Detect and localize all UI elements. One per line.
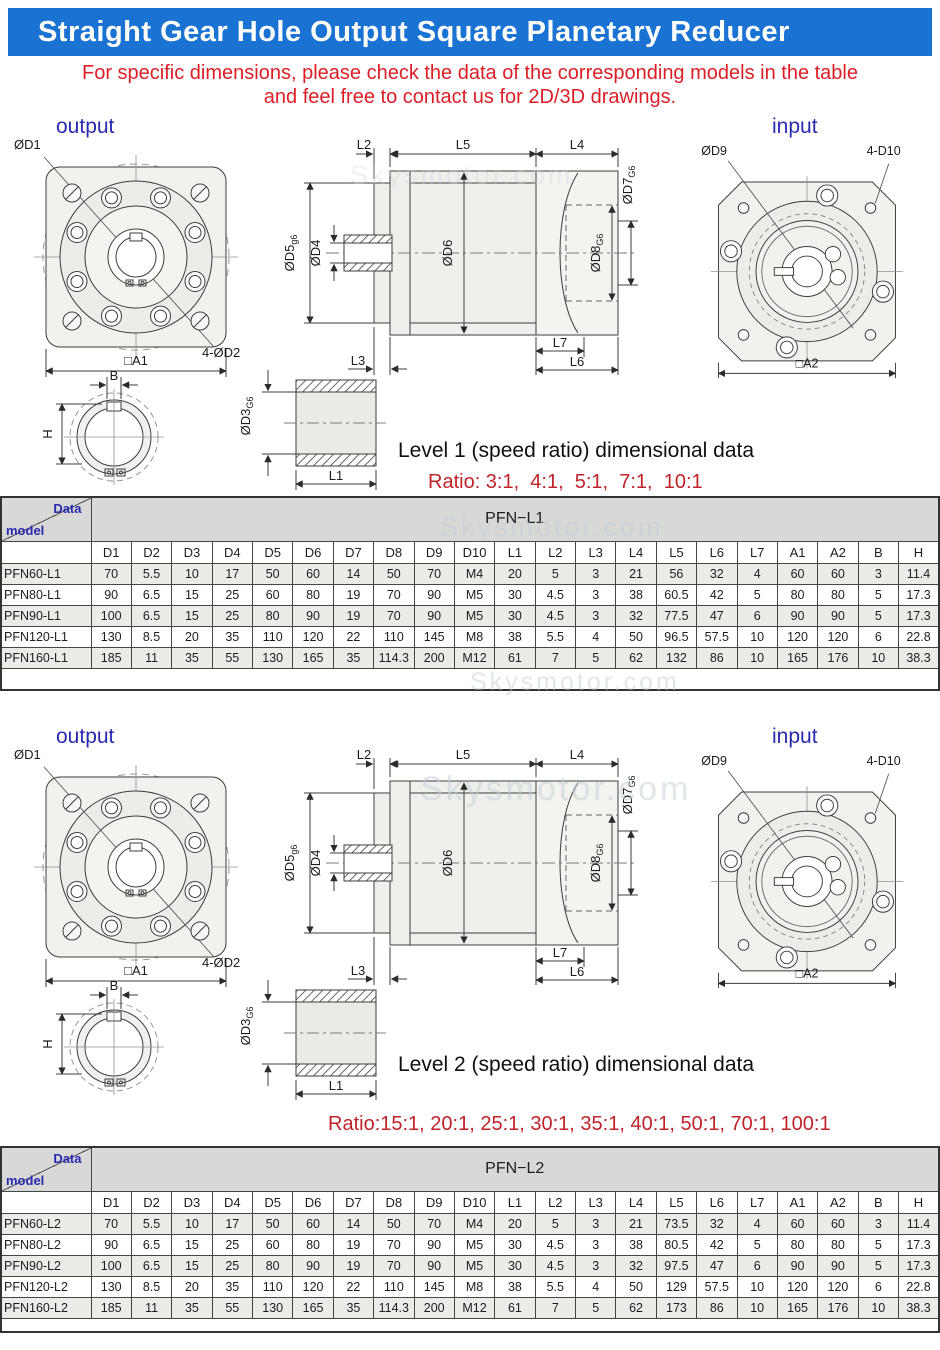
column-header: A2 [818, 541, 858, 563]
value-cell: 90 [91, 1234, 131, 1255]
value-cell: 20 [495, 1213, 535, 1234]
value-cell: 77.5 [656, 605, 696, 626]
value-cell: 22 [333, 626, 373, 647]
value-cell: 5.5 [535, 1276, 575, 1297]
column-header: L7 [737, 1191, 777, 1213]
value-cell: 3 [576, 584, 616, 605]
value-cell: 5 [858, 605, 898, 626]
value-cell: 7 [535, 647, 575, 668]
model-cell: PFN80-L2 [1, 1234, 91, 1255]
column-header: D9 [414, 1191, 454, 1213]
corner-label-data: Data [53, 1151, 81, 1166]
value-cell: 80 [777, 1234, 817, 1255]
table-row: PFN120-L21308.5203511012022110145M8385.5… [1, 1276, 939, 1297]
output-view [8, 133, 278, 383]
group-header-row: Data model PFN−L2 [1, 1147, 939, 1191]
value-cell: 60 [253, 1234, 293, 1255]
value-cell: 100 [91, 1255, 131, 1276]
series-header: PFN−L1 [91, 497, 939, 541]
value-cell: 96.5 [656, 626, 696, 647]
bushing-view [238, 964, 388, 1104]
value-cell: 38 [616, 584, 656, 605]
value-cell: 47 [697, 605, 737, 626]
value-cell: 60.5 [656, 584, 696, 605]
corner-label-data: Data [53, 501, 81, 516]
value-cell: 17.3 [899, 605, 940, 626]
column-header: A1 [777, 1191, 817, 1213]
column-header: L5 [656, 541, 696, 563]
level1-ratio: Ratio: 3:1, 4:1, 5:1, 7:1, 10:1 [428, 471, 703, 494]
value-cell: 80 [293, 1234, 333, 1255]
value-cell: 129 [656, 1276, 696, 1297]
value-cell: 114.3 [374, 647, 414, 668]
value-cell: 60 [293, 563, 333, 584]
column-header: L4 [616, 541, 656, 563]
value-cell: 130 [253, 647, 293, 668]
value-cell: 80 [253, 1255, 293, 1276]
input-view [682, 133, 932, 383]
value-cell: 55 [212, 1297, 252, 1318]
value-cell: 20 [495, 563, 535, 584]
value-cell: 10 [737, 647, 777, 668]
value-cell: 6 [737, 1255, 777, 1276]
table-row: PFN160-L218511355513016535114.3200M12617… [1, 1297, 939, 1318]
value-cell: 50 [374, 1213, 414, 1234]
value-cell: 35 [333, 647, 373, 668]
value-cell: 114.3 [374, 1297, 414, 1318]
value-cell: 62 [616, 647, 656, 668]
column-header: D10 [454, 1191, 494, 1213]
value-cell: 145 [414, 1276, 454, 1297]
value-cell: 176 [818, 647, 858, 668]
value-cell: 22.8 [899, 1276, 940, 1297]
value-cell: 61 [495, 647, 535, 668]
value-cell: 10 [737, 626, 777, 647]
value-cell: 61 [495, 1297, 535, 1318]
value-cell: 6.5 [131, 605, 171, 626]
value-cell: 110 [253, 626, 293, 647]
value-cell: 10 [737, 1276, 777, 1297]
value-cell: 21 [616, 563, 656, 584]
value-cell: 130 [253, 1297, 293, 1318]
model-cell: PFN120-L1 [1, 626, 91, 647]
value-cell: 35 [172, 1297, 212, 1318]
table-row: PFN60-L1705.510175060145070M420532156324… [1, 563, 939, 584]
model-cell: PFN90-L1 [1, 605, 91, 626]
value-cell: 6 [858, 1276, 898, 1297]
column-header: H [899, 541, 940, 563]
model-cell: PFN80-L1 [1, 584, 91, 605]
value-cell: M8 [454, 626, 494, 647]
table-row: PFN90-L11006.515258090197090M5304.533277… [1, 605, 939, 626]
value-cell: 60 [777, 563, 817, 584]
value-cell: 15 [172, 1255, 212, 1276]
value-cell: 110 [253, 1276, 293, 1297]
value-cell: 25 [212, 1255, 252, 1276]
value-cell: 90 [414, 1255, 454, 1276]
value-cell: 30 [495, 1255, 535, 1276]
value-cell: 110 [374, 1276, 414, 1297]
value-cell: 4 [576, 626, 616, 647]
value-cell: 200 [414, 647, 454, 668]
value-cell: 5.5 [131, 1213, 171, 1234]
column-header: L1 [495, 1191, 535, 1213]
value-cell: 80.5 [656, 1234, 696, 1255]
column-header: D9 [414, 541, 454, 563]
value-cell: 30 [495, 1234, 535, 1255]
value-cell: 70 [374, 584, 414, 605]
value-cell: 50 [253, 1213, 293, 1234]
value-cell: 32 [697, 563, 737, 584]
model-cell: PFN160-L2 [1, 1297, 91, 1318]
column-header: D8 [374, 1191, 414, 1213]
value-cell: 6.5 [131, 584, 171, 605]
level2-ratio: Ratio:15:1, 20:1, 25:1, 30:1, 35:1, 40:1… [328, 1113, 831, 1136]
value-cell: 120 [818, 1276, 858, 1297]
value-cell: 35 [212, 1276, 252, 1297]
value-cell: 3 [576, 563, 616, 584]
table-row: PFN160-L118511355513016535114.3200M12617… [1, 647, 939, 668]
value-cell: 110 [374, 626, 414, 647]
page: Straight Gear Hole Output Square Planeta… [0, 0, 940, 1350]
dimension-table-l2: Data model PFN−L2 D1D2D3D4D5D6D7D8D9D10L… [0, 1146, 940, 1333]
value-cell: 38 [495, 1276, 535, 1297]
value-cell: 15 [172, 1234, 212, 1255]
column-header: L5 [656, 1191, 696, 1213]
value-cell: 185 [91, 1297, 131, 1318]
value-cell: 55 [212, 647, 252, 668]
value-cell: 5.5 [131, 563, 171, 584]
empty-header-cell [1, 1191, 91, 1213]
value-cell: 6 [737, 605, 777, 626]
column-header: D4 [212, 1191, 252, 1213]
value-cell: 50 [374, 563, 414, 584]
value-cell: M5 [454, 1234, 494, 1255]
value-cell: 90 [414, 584, 454, 605]
model-cell: PFN120-L2 [1, 1276, 91, 1297]
value-cell: 5 [858, 1255, 898, 1276]
column-header: D7 [333, 541, 373, 563]
value-cell: 11 [131, 1297, 171, 1318]
level1-section: output input Level 1 (speed ratio) dimen… [0, 111, 940, 691]
column-header: L3 [576, 1191, 616, 1213]
value-cell: 38 [616, 1234, 656, 1255]
column-header: L2 [535, 541, 575, 563]
value-cell: 19 [333, 1234, 373, 1255]
group-header-row: Data model PFN−L1 [1, 497, 939, 541]
value-cell: 80 [818, 584, 858, 605]
bushing-view [238, 354, 388, 494]
value-cell: 3 [858, 1213, 898, 1234]
value-cell: 35 [212, 626, 252, 647]
value-cell: 90 [414, 1234, 454, 1255]
value-cell: 4.5 [535, 605, 575, 626]
value-cell: 60 [777, 1213, 817, 1234]
drawings-panel-2: output input Level 2 (speed ratio) dimen… [0, 721, 940, 1146]
column-header: B [858, 541, 898, 563]
value-cell: 90 [293, 1255, 333, 1276]
value-cell: 60 [818, 563, 858, 584]
value-cell: 32 [616, 1255, 656, 1276]
value-cell: 20 [172, 1276, 212, 1297]
value-cell: 90 [777, 1255, 817, 1276]
value-cell: 70 [91, 1213, 131, 1234]
value-cell: 185 [91, 647, 131, 668]
value-cell: 80 [777, 584, 817, 605]
column-header: D2 [131, 1191, 171, 1213]
value-cell: M12 [454, 1297, 494, 1318]
value-cell: 60 [293, 1213, 333, 1234]
value-cell: 173 [656, 1297, 696, 1318]
column-header-row: D1D2D3D4D5D6D7D8D9D10L1L2L3L4L5L6L7A1A2B… [1, 541, 939, 563]
value-cell: 6 [858, 626, 898, 647]
value-cell: M8 [454, 1276, 494, 1297]
level1-heading: Level 1 (speed ratio) dimensional data [398, 439, 754, 463]
value-cell: 15 [172, 605, 212, 626]
value-cell: 50 [616, 626, 656, 647]
value-cell: M5 [454, 584, 494, 605]
value-cell: 4 [576, 1276, 616, 1297]
value-cell: 5 [576, 1297, 616, 1318]
series-header: PFN−L2 [91, 1147, 939, 1191]
column-header-row: D1D2D3D4D5D6D7D8D9D10L1L2L3L4L5L6L7A1A2B… [1, 1191, 939, 1213]
value-cell: 14 [333, 1213, 373, 1234]
value-cell: 14 [333, 563, 373, 584]
value-cell: 3 [858, 563, 898, 584]
value-cell: 6.5 [131, 1234, 171, 1255]
value-cell: 35 [333, 1297, 373, 1318]
value-cell: 60 [253, 584, 293, 605]
blank-cell [1, 1318, 939, 1332]
value-cell: 80 [293, 584, 333, 605]
blank-cell [1, 668, 939, 690]
value-cell: 10 [172, 563, 212, 584]
value-cell: M5 [454, 605, 494, 626]
value-cell: 120 [293, 626, 333, 647]
value-cell: 11.4 [899, 1213, 940, 1234]
value-cell: 5 [858, 1234, 898, 1255]
value-cell: 50 [616, 1276, 656, 1297]
value-cell: M4 [454, 1213, 494, 1234]
value-cell: 145 [414, 626, 454, 647]
hub-view [42, 979, 192, 1104]
column-header: D2 [131, 541, 171, 563]
value-cell: M12 [454, 647, 494, 668]
value-cell: 120 [818, 626, 858, 647]
value-cell: 3 [576, 1234, 616, 1255]
column-header: L6 [697, 541, 737, 563]
value-cell: 25 [212, 584, 252, 605]
value-cell: 10 [858, 647, 898, 668]
value-cell: 19 [333, 584, 373, 605]
value-cell: 120 [777, 626, 817, 647]
value-cell: 32 [697, 1213, 737, 1234]
value-cell: 5 [535, 1213, 575, 1234]
value-cell: 3 [576, 605, 616, 626]
empty-header-cell [1, 541, 91, 563]
value-cell: 73.5 [656, 1213, 696, 1234]
model-cell: PFN60-L1 [1, 563, 91, 584]
section-view [278, 121, 648, 386]
value-cell: 165 [777, 647, 817, 668]
value-cell: 17.3 [899, 1234, 940, 1255]
value-cell: 19 [333, 605, 373, 626]
value-cell: 38 [495, 626, 535, 647]
value-cell: 5 [737, 584, 777, 605]
value-cell: 165 [293, 1297, 333, 1318]
level2-section: output input Level 2 (speed ratio) dimen… [0, 721, 940, 1333]
drawings-panel-1: output input Level 1 (speed ratio) dimen… [0, 111, 940, 496]
value-cell: 11 [131, 647, 171, 668]
value-cell: 130 [91, 626, 131, 647]
value-cell: 38.3 [899, 1297, 940, 1318]
value-cell: 4.5 [535, 1234, 575, 1255]
column-header: A1 [777, 541, 817, 563]
corner-cell: Data model [1, 497, 91, 541]
column-header: L1 [495, 541, 535, 563]
value-cell: 7 [535, 1297, 575, 1318]
value-cell: 80 [253, 605, 293, 626]
value-cell: 17.3 [899, 584, 940, 605]
value-cell: 70 [374, 1234, 414, 1255]
value-cell: 5 [858, 584, 898, 605]
column-header: D7 [333, 1191, 373, 1213]
value-cell: 5 [737, 1234, 777, 1255]
value-cell: 4.5 [535, 1255, 575, 1276]
value-cell: M5 [454, 1255, 494, 1276]
column-header: D6 [293, 1191, 333, 1213]
value-cell: M4 [454, 563, 494, 584]
table-row: PFN80-L1906.515256080197090M5304.533860.… [1, 584, 939, 605]
column-header: L6 [697, 1191, 737, 1213]
column-header: L2 [535, 1191, 575, 1213]
value-cell: 5.5 [535, 626, 575, 647]
table-row: PFN120-L11308.5203511012022110145M8385.5… [1, 626, 939, 647]
model-cell: PFN90-L2 [1, 1255, 91, 1276]
value-cell: 165 [293, 647, 333, 668]
value-cell: 90 [91, 584, 131, 605]
column-header: L3 [576, 541, 616, 563]
value-cell: 3 [576, 1255, 616, 1276]
value-cell: 90 [818, 605, 858, 626]
section-view [278, 731, 648, 996]
value-cell: 35 [172, 647, 212, 668]
dimension-table-l1: Data model PFN−L1 D1D2D3D4D5D6D7D8D9D10L… [0, 496, 940, 691]
value-cell: 57.5 [697, 626, 737, 647]
value-cell: 5 [535, 563, 575, 584]
value-cell: 47 [697, 1255, 737, 1276]
value-cell: 120 [293, 1276, 333, 1297]
value-cell: 90 [293, 605, 333, 626]
column-header: D1 [91, 1191, 131, 1213]
value-cell: 70 [374, 1255, 414, 1276]
table-row: PFN60-L2705.510175060145070M420532173.53… [1, 1213, 939, 1234]
value-cell: 97.5 [656, 1255, 696, 1276]
value-cell: 86 [697, 647, 737, 668]
column-header: D4 [212, 541, 252, 563]
value-cell: 6.5 [131, 1255, 171, 1276]
value-cell: 60 [818, 1213, 858, 1234]
corner-label-model: model [6, 1173, 44, 1188]
column-header: D10 [454, 541, 494, 563]
value-cell: 80 [818, 1234, 858, 1255]
level2-heading: Level 2 (speed ratio) dimensional data [398, 1053, 754, 1077]
value-cell: 17 [212, 1213, 252, 1234]
value-cell: 86 [697, 1297, 737, 1318]
value-cell: 17.3 [899, 1255, 940, 1276]
value-cell: 4 [737, 1213, 777, 1234]
value-cell: 19 [333, 1255, 373, 1276]
table-row: PFN90-L21006.515258090197090M5304.533297… [1, 1255, 939, 1276]
value-cell: 50 [253, 563, 293, 584]
value-cell: 25 [212, 605, 252, 626]
value-cell: 176 [818, 1297, 858, 1318]
value-cell: 100 [91, 605, 131, 626]
model-cell: PFN60-L2 [1, 1213, 91, 1234]
value-cell: 132 [656, 647, 696, 668]
blank-row [1, 1318, 939, 1332]
value-cell: 10 [172, 1213, 212, 1234]
column-header: A2 [818, 1191, 858, 1213]
column-header: D3 [172, 541, 212, 563]
table-row: PFN80-L2906.515256080197090M5304.533880.… [1, 1234, 939, 1255]
value-cell: 5 [576, 647, 616, 668]
value-cell: 3 [576, 1213, 616, 1234]
value-cell: 8.5 [131, 626, 171, 647]
value-cell: 10 [858, 1297, 898, 1318]
value-cell: 20 [172, 626, 212, 647]
column-header: L4 [616, 1191, 656, 1213]
column-header: D5 [253, 1191, 293, 1213]
column-header: H [899, 1191, 940, 1213]
model-cell: PFN160-L1 [1, 647, 91, 668]
value-cell: 70 [374, 605, 414, 626]
column-header: D8 [374, 541, 414, 563]
value-cell: 90 [777, 605, 817, 626]
value-cell: 15 [172, 584, 212, 605]
value-cell: 200 [414, 1297, 454, 1318]
value-cell: 32 [616, 605, 656, 626]
value-cell: 42 [697, 1234, 737, 1255]
column-header: B [858, 1191, 898, 1213]
value-cell: 4 [737, 563, 777, 584]
notice-text: For specific dimensions, please check th… [0, 61, 940, 109]
value-cell: 56 [656, 563, 696, 584]
corner-cell: Data model [1, 1147, 91, 1191]
column-header: L7 [737, 541, 777, 563]
value-cell: 70 [414, 563, 454, 584]
value-cell: 30 [495, 584, 535, 605]
value-cell: 165 [777, 1297, 817, 1318]
value-cell: 25 [212, 1234, 252, 1255]
value-cell: 130 [91, 1276, 131, 1297]
value-cell: 21 [616, 1213, 656, 1234]
value-cell: 120 [777, 1276, 817, 1297]
value-cell: 22.8 [899, 626, 940, 647]
value-cell: 62 [616, 1297, 656, 1318]
value-cell: 4.5 [535, 584, 575, 605]
notice-line-2: and feel free to contact us for 2D/3D dr… [0, 85, 940, 109]
value-cell: 70 [414, 1213, 454, 1234]
value-cell: 90 [414, 605, 454, 626]
value-cell: 42 [697, 584, 737, 605]
column-header: D5 [253, 541, 293, 563]
hub-view [42, 369, 192, 494]
value-cell: 30 [495, 605, 535, 626]
notice-line-1: For specific dimensions, please check th… [0, 61, 940, 85]
column-header: D3 [172, 1191, 212, 1213]
corner-label-model: model [6, 523, 44, 538]
